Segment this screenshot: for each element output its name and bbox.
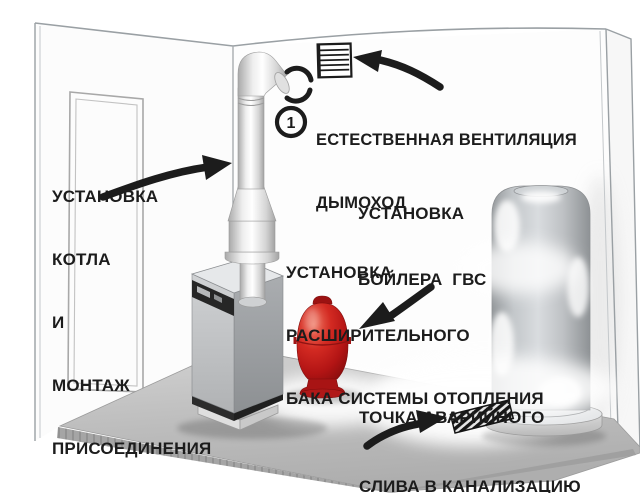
label-line: УСТАНОВКА [286,262,544,283]
label-line: МОНТАЖ [52,375,211,396]
callout-1-badge: 1 [277,108,305,136]
boiler-room-diagram: 1 ЕСТЕСТВЕННАЯ ВЕНТИЛЯЦИЯ ДЫМОХОД УСТАНО… [0,0,640,493]
label-line: КОТЛА [52,249,211,270]
label-boiler-and-chimney-install: УСТАНОВКА КОТЛА И МОНТАЖ ПРИСОЕДИНЕНИЯ Д… [52,144,211,493]
callout-number: 1 [287,115,296,132]
label-line: СЛИВА В КАНАЛИЗАЦИЮ [359,475,581,493]
label-emergency-drain-point: ТОЧКА АВАРИЙНОГО СЛИВА В КАНАЛИЗАЦИЮ [359,360,581,493]
label-line: ТОЧКА АВАРИЙНОГО [359,406,581,429]
label-line: РАСШИРИТЕЛЬНОГО [286,325,544,346]
label-line: УСТАНОВКА [52,186,211,207]
label-line: И [52,312,211,333]
label-line: ПРИСОЕДИНЕНИЯ [52,438,211,459]
label-line: ЕСТЕСТВЕННАЯ ВЕНТИЛЯЦИЯ [316,130,577,151]
vent-grille-icon [318,44,352,78]
